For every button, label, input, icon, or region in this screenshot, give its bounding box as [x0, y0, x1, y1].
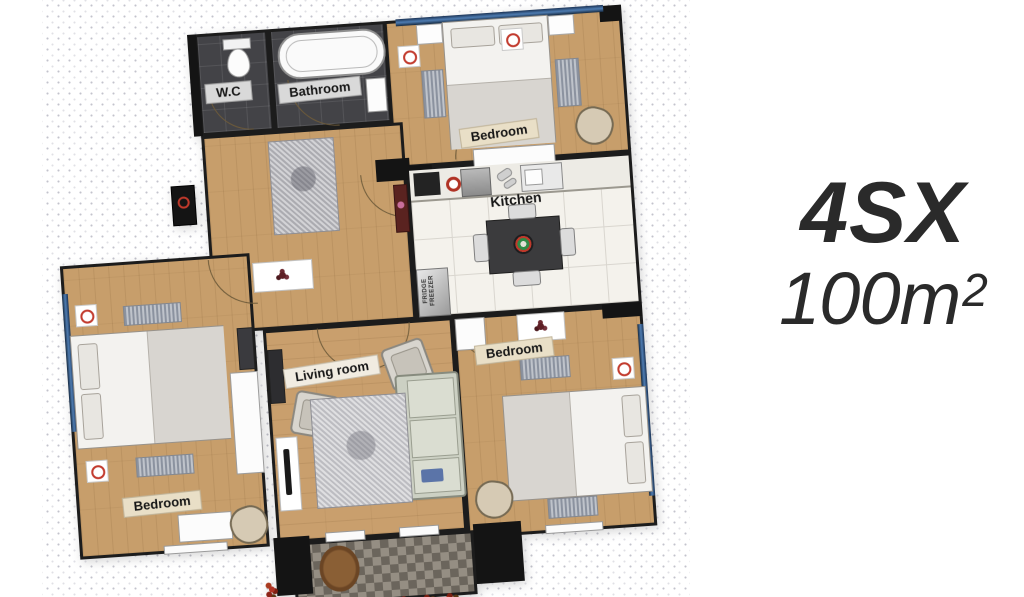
- decor-plate: [500, 28, 523, 51]
- decor-plate: [612, 357, 635, 380]
- fridge-label: FRIDGE FREEZER: [421, 270, 438, 311]
- balcony-flowers: [269, 586, 275, 592]
- bed-left: [70, 325, 232, 449]
- floorplan-listing-image: FRIDGE FREEZER: [0, 0, 1024, 597]
- nightstand: [548, 14, 575, 36]
- balcony-wall-right: [473, 521, 525, 584]
- bench: [177, 511, 233, 543]
- plan-model-name: 4SX: [742, 168, 1024, 258]
- bed-right: [502, 386, 653, 502]
- floor-plan: FRIDGE FREEZER: [44, 4, 663, 597]
- plan-area: 100m2: [742, 258, 1024, 339]
- decor-plate: [397, 45, 420, 68]
- dining-chair: [473, 233, 490, 262]
- plant-mat: [252, 259, 314, 293]
- wardrobe: [230, 371, 265, 475]
- balcony-wall-left: [273, 536, 313, 596]
- decor-plate: [85, 460, 108, 483]
- nightstand: [416, 23, 443, 45]
- cooktop: [413, 172, 441, 197]
- bedside-rug: [555, 58, 582, 108]
- bedside-rug: [135, 454, 194, 478]
- dining-chair: [559, 227, 576, 256]
- plan-annotation: 4SX 100m2: [742, 168, 1024, 340]
- decor-plate: [75, 304, 98, 327]
- bathtub: [276, 27, 387, 80]
- label-wc: W.C: [204, 80, 252, 104]
- wall-sign: [171, 185, 198, 227]
- cabinet: [237, 327, 256, 370]
- bathroom-sink: [365, 77, 387, 112]
- bedside-rug: [123, 302, 182, 326]
- bedside-rug: [547, 495, 598, 518]
- bedside-rug: [421, 69, 446, 118]
- dining-chair: [512, 270, 541, 287]
- living-rug: [310, 393, 413, 509]
- hallway-rug: [268, 137, 340, 235]
- wall-chunk: [602, 302, 643, 319]
